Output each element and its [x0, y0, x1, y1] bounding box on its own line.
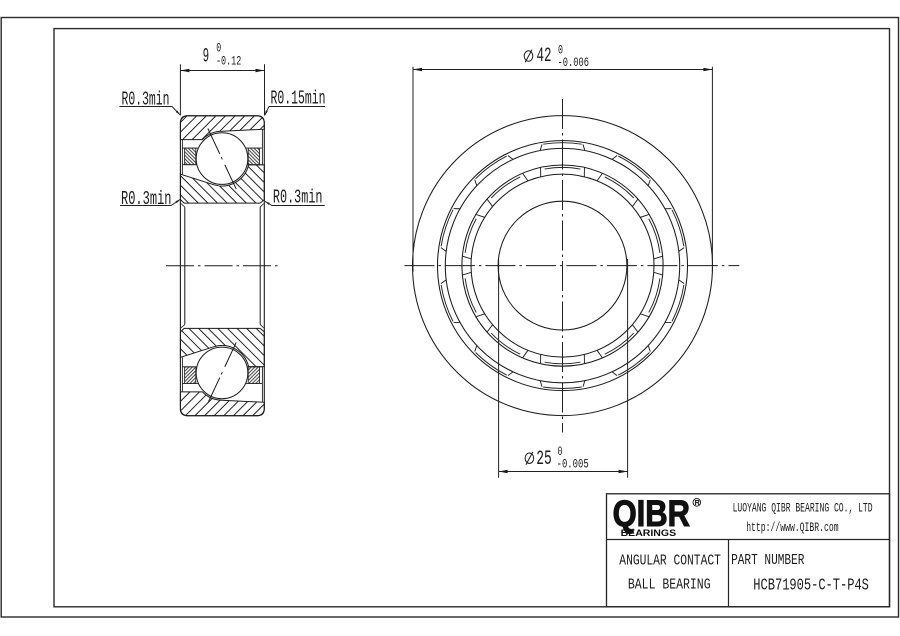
- svg-text:BALL BEARING: BALL BEARING: [628, 577, 711, 594]
- svg-text:R: R: [695, 498, 701, 507]
- svg-text:HCB71905-C-T-P4S: HCB71905-C-T-P4S: [753, 576, 869, 594]
- svg-text:-0.005: -0.005: [557, 458, 589, 472]
- svg-text:BEARINGS: BEARINGS: [621, 528, 677, 538]
- svg-text:R0.3min: R0.3min: [122, 89, 170, 111]
- svg-text:9: 9: [203, 46, 210, 69]
- svg-text:PART NUMBER: PART NUMBER: [731, 553, 804, 569]
- svg-text:LUOYANG QIBR BEARING CO., LTD: LUOYANG QIBR BEARING CO., LTD: [733, 501, 873, 516]
- svg-text:ANGULAR CONTACT: ANGULAR CONTACT: [619, 552, 721, 569]
- svg-text:42: 42: [537, 45, 552, 68]
- svg-text:http://www.QIBR.com: http://www.QIBR.com: [746, 520, 838, 535]
- svg-text:25: 25: [536, 448, 552, 471]
- svg-text:-0.12: -0.12: [216, 55, 241, 69]
- svg-text:0: 0: [216, 42, 221, 56]
- svg-text:R0.3min: R0.3min: [121, 188, 172, 210]
- svg-text:-0.006: -0.006: [558, 56, 590, 70]
